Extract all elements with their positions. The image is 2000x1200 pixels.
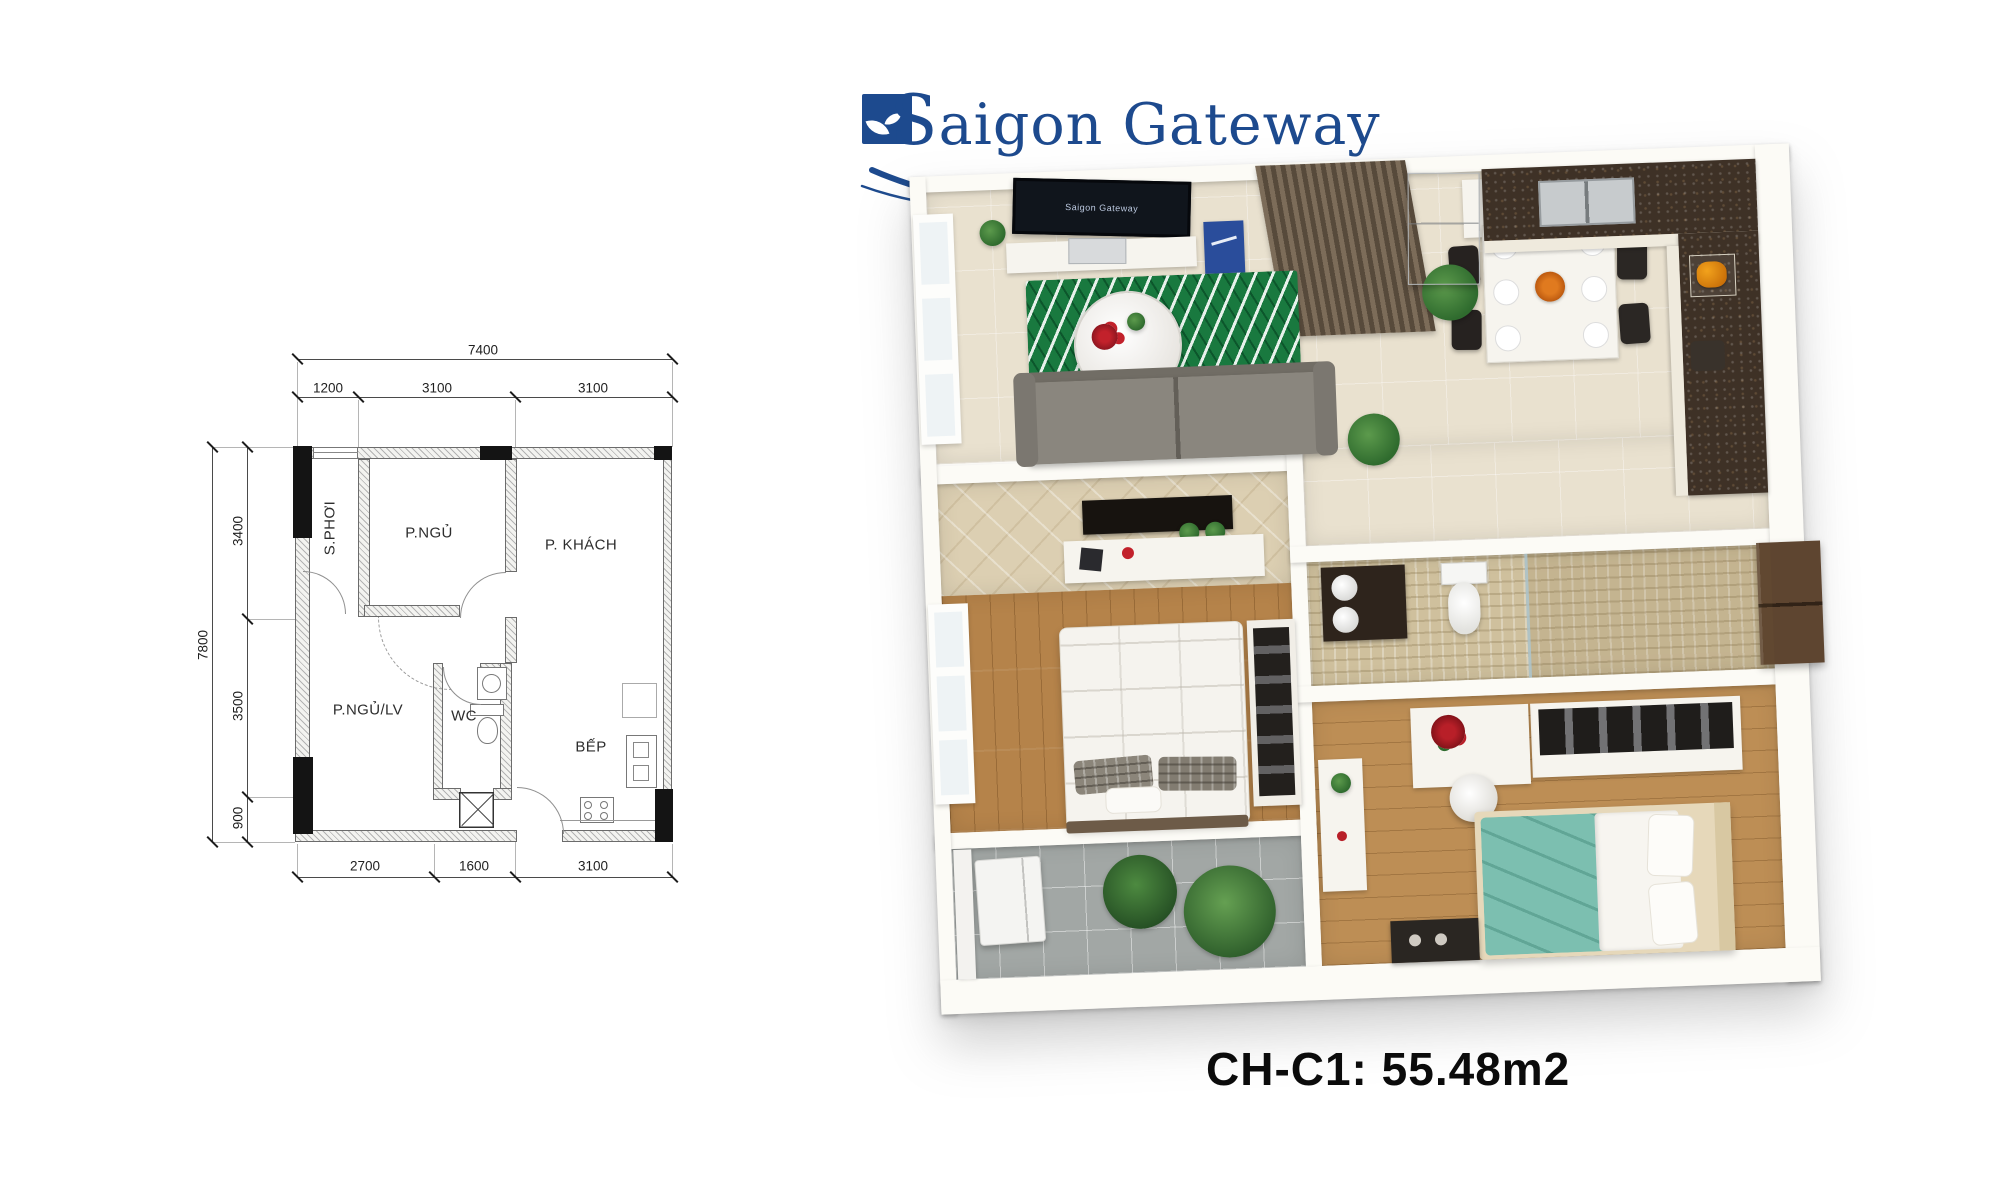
- dim-label: 3400: [231, 514, 245, 548]
- dim-line: [297, 397, 672, 398]
- washing-machine: [974, 856, 1046, 947]
- ext-line: [515, 400, 516, 447]
- window-frame: [928, 603, 976, 804]
- dresser-item: [1079, 547, 1103, 571]
- ext-line: [297, 844, 298, 877]
- window-glass: [925, 374, 955, 437]
- bed2-cabinet-dark: [1390, 918, 1480, 963]
- wall-right: [663, 447, 672, 842]
- render-3d: Saigon Gateway: [868, 100, 1862, 1051]
- ext-line: [248, 619, 295, 620]
- wardrobe-interior: [1538, 702, 1734, 755]
- column: [293, 757, 313, 834]
- unit-caption: CH-C1: 55.48m2: [1206, 1042, 1570, 1096]
- master-pillow-white: [1105, 786, 1162, 814]
- door-arc-sphoi: [303, 571, 346, 614]
- wc-sink: [477, 667, 507, 700]
- fruit-basket: [1689, 254, 1737, 298]
- bed2-duvet-teal: [1480, 813, 1611, 956]
- ext-line: [672, 844, 673, 877]
- tv-screen: Saigon Gateway: [1012, 178, 1191, 238]
- dim-label: 1600: [457, 859, 491, 873]
- kitchen-cabinet-outline: [622, 683, 657, 718]
- dim-label-total-width: 7400: [466, 343, 500, 357]
- dim-label-total-height: 7800: [196, 628, 210, 662]
- fridge: [1408, 173, 1480, 285]
- blue-painting: [1203, 220, 1245, 273]
- dim-line: [297, 359, 672, 360]
- ext-line: [434, 844, 435, 877]
- sofa-armrest: [1313, 361, 1339, 456]
- plate: [1582, 321, 1609, 348]
- burner: [600, 801, 608, 809]
- door-arc-pngu: [460, 572, 506, 618]
- window-glass: [934, 611, 964, 667]
- cabinet-cup: [1435, 933, 1447, 945]
- shaft: [459, 792, 494, 828]
- window-top: [313, 447, 358, 459]
- dim-label: 3100: [420, 381, 454, 395]
- door-arc-pngulv: [378, 617, 451, 690]
- dining-chair: [1618, 302, 1651, 344]
- floorplan-sheet: Saigon Gateway: [0, 0, 2000, 1200]
- column: [655, 789, 673, 842]
- wc-sink-bowl: [482, 674, 501, 693]
- wall-bottom: [295, 830, 517, 842]
- dim-label: 900: [231, 805, 245, 832]
- bed2-pillow: [1647, 814, 1695, 877]
- coffee-maker: [1690, 340, 1725, 371]
- master-pillow-plaid: [1158, 756, 1236, 790]
- wall-hall: [505, 617, 517, 663]
- plate: [1495, 325, 1522, 352]
- sofa-seat: [1023, 371, 1332, 465]
- wall-wc-bottom: [433, 788, 461, 800]
- door-arc-entrance: [517, 787, 564, 834]
- bed2-vanity: [1318, 758, 1367, 892]
- tv-screen-text: Saigon Gateway: [1065, 202, 1138, 214]
- bed2-pillow: [1647, 880, 1698, 946]
- burner: [584, 812, 592, 820]
- toilet-bowl: [477, 717, 498, 744]
- ext-line: [213, 842, 295, 843]
- window-glass: [922, 298, 952, 361]
- kitchen-sink-cabinet: [626, 735, 657, 788]
- kitchen-sink: [1538, 177, 1636, 227]
- wall-sphoi-pngu: [358, 459, 370, 617]
- ext-line: [297, 362, 298, 447]
- window-glass: [919, 222, 949, 285]
- bath-sink: [1331, 574, 1358, 601]
- wardrobe-interior: [1253, 627, 1295, 796]
- door-arc-wc: [443, 667, 481, 705]
- plate: [1581, 276, 1608, 303]
- dim-line: [212, 447, 213, 842]
- column: [293, 446, 312, 538]
- window-mullion: [313, 452, 358, 453]
- column: [654, 446, 672, 460]
- plate: [1493, 279, 1520, 306]
- sink-basin: [633, 742, 649, 758]
- bed2-wardrobe: [1530, 696, 1743, 778]
- vanity-plant: [1331, 773, 1352, 794]
- column: [480, 446, 512, 460]
- bath-sink: [1332, 606, 1359, 633]
- dim-label: 2700: [348, 859, 382, 873]
- room-label-sphoi: S.PHƠI: [322, 501, 339, 555]
- flower-centerpiece: [1534, 271, 1565, 302]
- sofa-armrest: [1013, 373, 1039, 468]
- dim-label: 3100: [576, 859, 610, 873]
- ext-line: [672, 362, 673, 447]
- oranges: [1696, 261, 1727, 288]
- toilet3d-bowl: [1447, 582, 1481, 635]
- window-glass: [939, 739, 969, 795]
- dim-line: [297, 877, 672, 878]
- counter-line: [560, 820, 655, 821]
- room-label-pngu: P.NGỦ: [405, 525, 453, 542]
- wall-pngu-right: [505, 459, 517, 572]
- technical-floorplan: 7400 1200 3100 3100 7800 3400 3500 900 2…: [0, 0, 760, 950]
- dim-label: 1200: [311, 381, 345, 395]
- cabinet-cup: [1409, 934, 1421, 946]
- bath-vanity: [1321, 564, 1408, 641]
- laptop: [1068, 238, 1126, 264]
- painting-detail: [1211, 236, 1237, 246]
- master-wardrobe: [1247, 619, 1302, 807]
- dim-label: 3100: [576, 381, 610, 395]
- window-glass: [937, 675, 967, 731]
- burner: [600, 812, 608, 820]
- wall-wc-bottom: [493, 788, 512, 800]
- room-label-bep: BẾP: [575, 739, 606, 756]
- wall-pngu-bottom: [364, 605, 460, 617]
- sink-basin: [633, 765, 649, 781]
- dim-label: 3500: [231, 689, 245, 723]
- burner: [584, 801, 592, 809]
- ext-line: [248, 797, 295, 798]
- room-label-pkhach: P. KHÁCH: [545, 537, 617, 554]
- ext-line: [213, 447, 295, 448]
- vanity-item-red: [1337, 831, 1347, 841]
- room-label-pngulv: P.NGỦ/LV: [333, 702, 403, 719]
- dim-line: [247, 447, 248, 842]
- room-label-wc: WC: [451, 708, 477, 725]
- shower-floor: [1527, 544, 1775, 677]
